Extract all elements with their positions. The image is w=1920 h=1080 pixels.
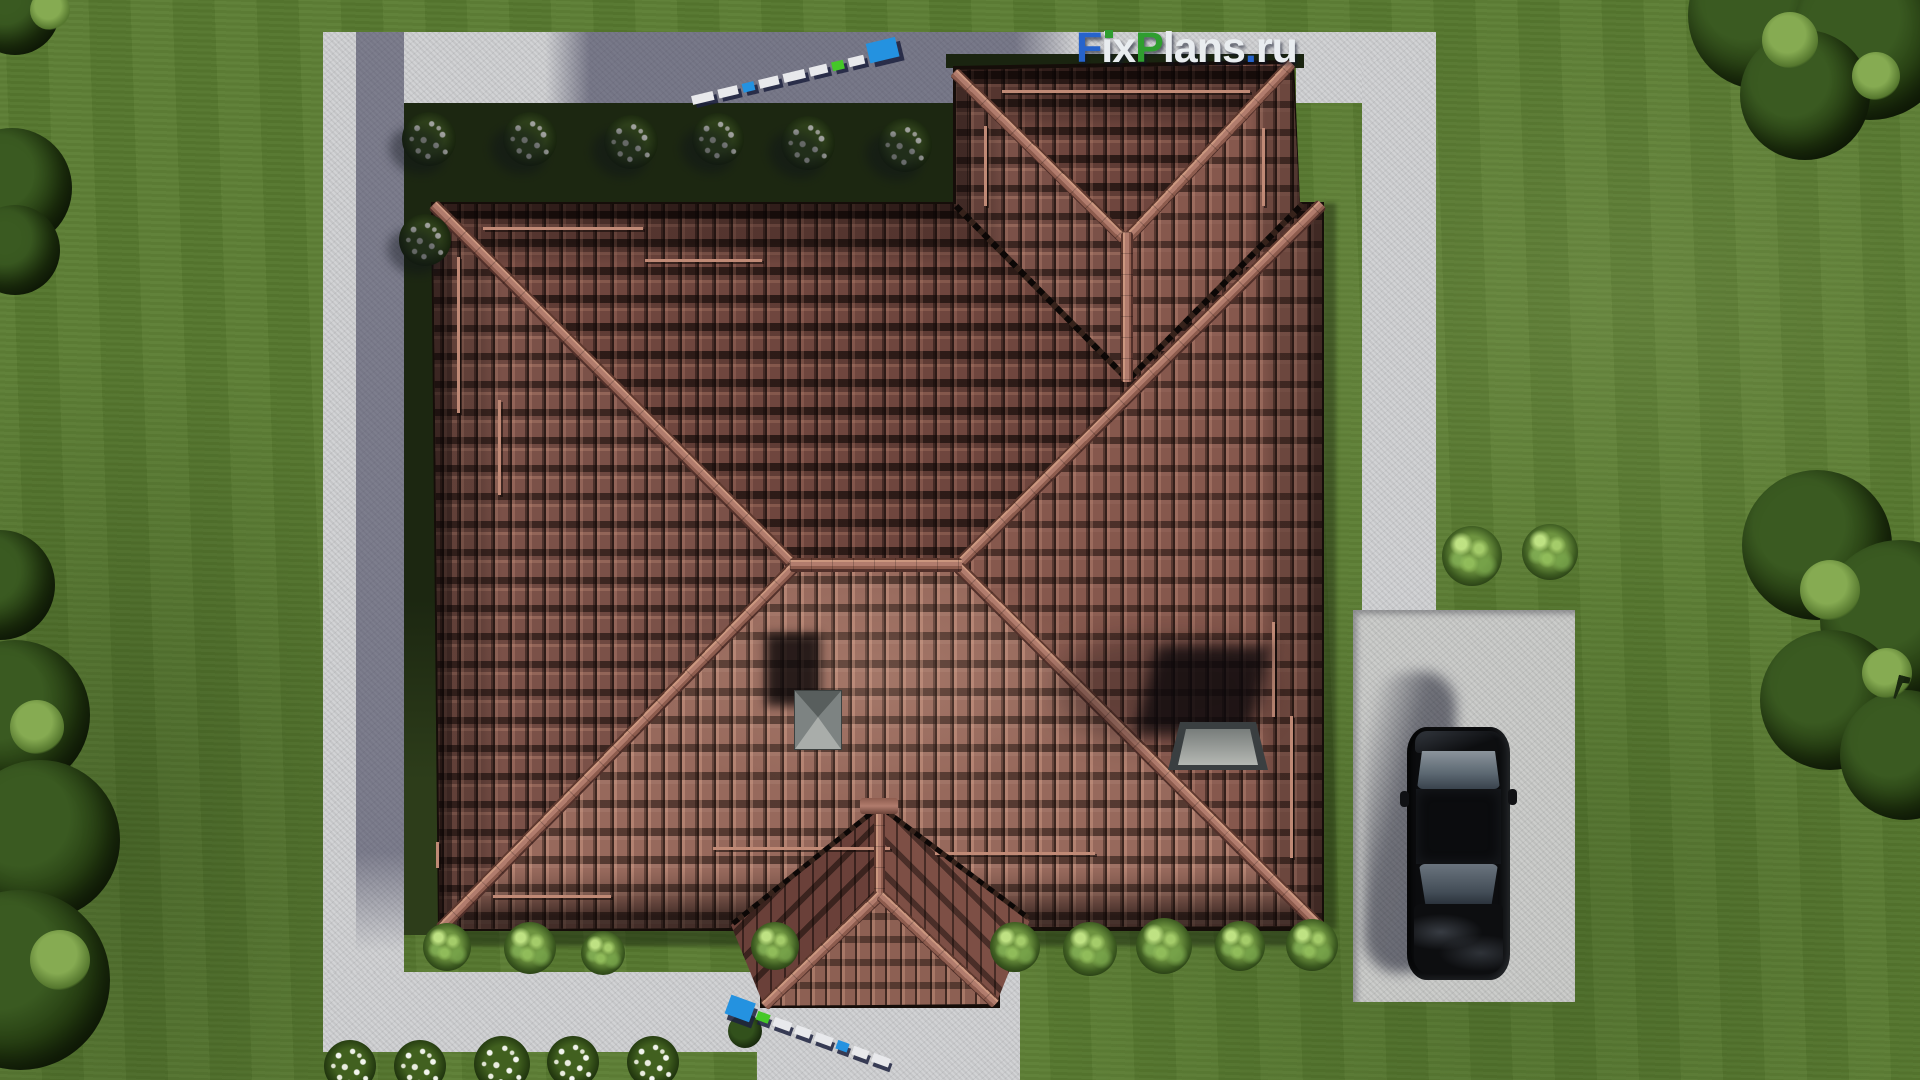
snow-rail [984,126,987,206]
ruler-segment [773,1017,793,1032]
car-trunk [1414,904,1503,974]
ruler-segment [691,90,714,104]
ruler-segment-blue [835,1039,849,1052]
hatch-shadow [1135,646,1271,734]
flower-bush [878,118,932,172]
tree-tuft [30,930,90,990]
right-path [1362,60,1436,612]
porch-walkway [757,1005,1020,1080]
shrub [504,922,556,974]
car-mirror-right [1508,789,1517,805]
tree-tuft [1762,12,1818,68]
ruler-segment [717,85,739,98]
car-roof [1416,789,1501,864]
snow-rail [483,227,643,230]
logo-letter-f: F [1076,24,1101,72]
shrub [1442,526,1502,586]
shrub [990,922,1040,972]
snow-rail [457,257,460,413]
ruler-segment [758,75,780,88]
ruler-segment [851,1045,869,1059]
annex-vertical-ridge [1121,232,1133,382]
ruler-segment [809,63,829,76]
tree-tuft [10,700,64,754]
left-path [323,32,404,1052]
car-rear-window [1419,864,1498,904]
shrub [1063,922,1117,976]
porch-vertical-ridge [874,804,885,899]
flower-bush [402,112,456,166]
roof-hatch [1168,722,1268,770]
flower-bush [692,113,744,165]
flower-bush [781,116,835,170]
chimney [794,690,842,750]
main-ridge [790,558,962,572]
watermark-logo: FixPlans.ru [1076,24,1297,73]
logo-i-dot [1105,30,1113,38]
shrub [1286,919,1338,971]
porch-peak-cap [860,798,898,814]
flower-bush [399,214,451,266]
car [1407,727,1510,980]
snow-rail [1002,90,1250,93]
ruler-segment [782,69,805,83]
snow-rail [1262,128,1265,206]
flower-bush [547,1036,599,1080]
tree [0,530,55,640]
shrub [581,931,625,975]
tree-tuft [1852,52,1900,100]
snow-rail [645,259,762,262]
logo-letters-lans: lans [1163,24,1245,72]
ruler-segment-green [756,1010,771,1023]
snow-rail [498,400,501,495]
logo-dot: . [1245,24,1256,72]
right-eave-grass-shadow [1322,203,1336,929]
snow-rail [1290,716,1293,858]
ruler-segment [794,1024,812,1038]
logo-letter-p: P [1135,24,1163,72]
car-mirror-left [1400,791,1409,807]
shrub [1215,921,1265,971]
shrub [1522,524,1578,580]
flower-bush [503,112,557,166]
shrub [1136,918,1192,974]
shrub [751,922,799,970]
snow-rail [935,852,1095,855]
sunlight-patch [640,560,1100,800]
ruler-segment [848,54,866,66]
car-windshield [1417,751,1500,789]
logo-letters-ru: ru [1256,24,1297,72]
tree-tuft [1800,560,1860,620]
ruler-segment [814,1032,834,1047]
ruler-segment-blue [742,81,756,93]
snow-rail [713,847,890,850]
snow-rail [493,895,611,898]
render-scene: FixPlans.ru [0,0,1920,1080]
flower-bush [627,1036,679,1080]
ruler-segment-green [831,59,845,71]
roof-hatch-top [1178,729,1258,765]
ruler-segment [871,1052,891,1067]
flower-bush [604,115,658,169]
snow-rail [436,842,439,868]
shrub [423,923,471,971]
snow-rail [1272,622,1275,717]
car-hood [1415,731,1502,753]
